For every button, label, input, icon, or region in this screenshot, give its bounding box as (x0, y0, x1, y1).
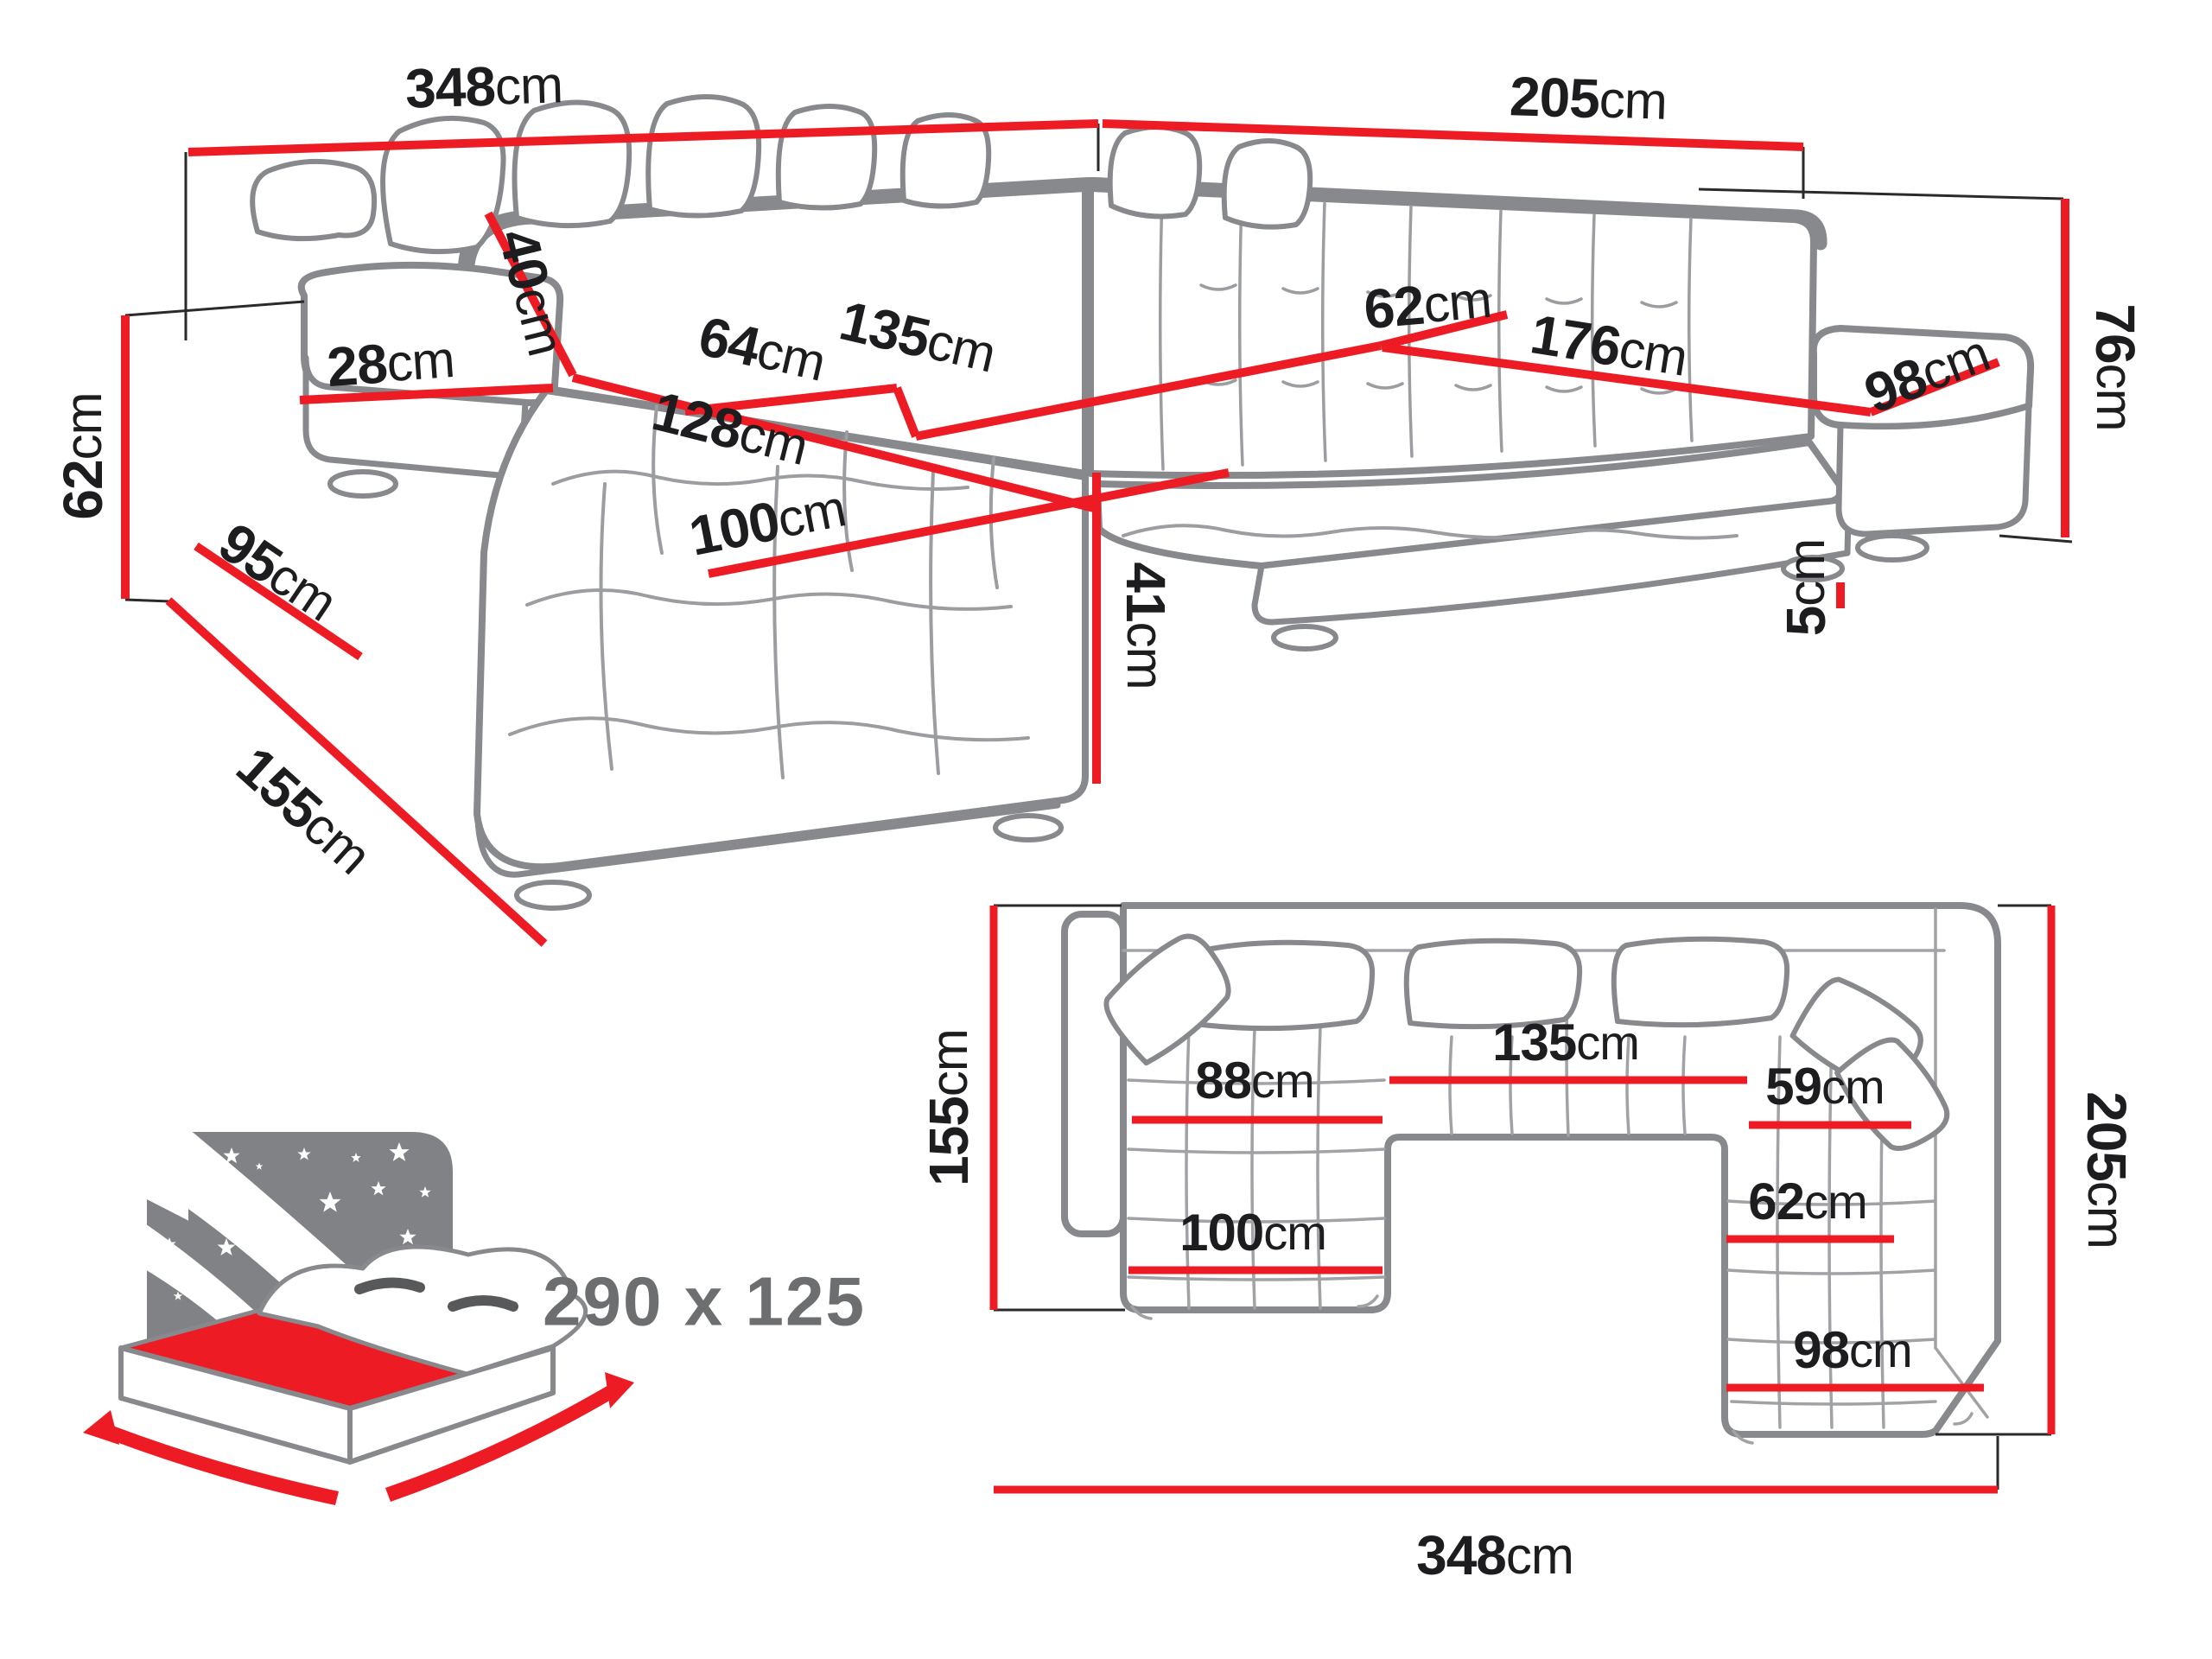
plan-label-155: 155cm (918, 1029, 980, 1186)
sleeping-size-label: 290 x 125 (543, 1263, 866, 1340)
plan-label-62: 62cm (1748, 1173, 1866, 1230)
left-armrest-foot (330, 472, 396, 496)
label-155-chaise: 155cm (225, 734, 383, 886)
right-armrest-front (1839, 406, 2029, 534)
line-205 (1103, 124, 1803, 147)
chaise-foot-right (995, 816, 1061, 840)
label-5-leg: 5cm (1775, 539, 1837, 637)
label-348-back: 348cm (404, 53, 563, 119)
chaise-foot-left (517, 882, 589, 908)
plan-label-135: 135cm (1492, 1014, 1639, 1071)
plan-label-88: 88cm (1195, 1052, 1313, 1109)
right-armrest-foot (1858, 536, 1927, 560)
plan-label-100: 100cm (1179, 1204, 1326, 1262)
right-base-foot-left (1274, 626, 1336, 649)
armrest-pillow (252, 162, 374, 238)
label-41-seat-height: 41cm (1115, 562, 1177, 689)
label-76-height: 76cm (2084, 303, 2146, 430)
pillow-shadow-2 (453, 1300, 513, 1306)
plan-label-98: 98cm (1793, 1321, 1911, 1379)
sofa-perspective-drawing (252, 97, 2031, 908)
dimension-diagram-page: 348cm 205cm 76cm 62cm 28cm 40cm 95cm 155… (0, 0, 2212, 1659)
label-28-arm: 28cm (325, 327, 456, 398)
label-205-back: 205cm (1509, 65, 1668, 132)
label-62-arm-height: 62cm (52, 392, 114, 519)
label-95-arm-length: 95cm (208, 511, 348, 633)
plan-left-armrest (1065, 914, 1123, 1234)
plan-label-348: 348cm (1416, 1524, 1573, 1586)
plan-label-205: 205cm (2075, 1091, 2138, 1249)
diagram-canvas: 348cm 205cm 76cm 62cm 28cm 40cm 95cm 155… (0, 0, 2212, 1659)
plan-label-59: 59cm (1765, 1058, 1884, 1116)
